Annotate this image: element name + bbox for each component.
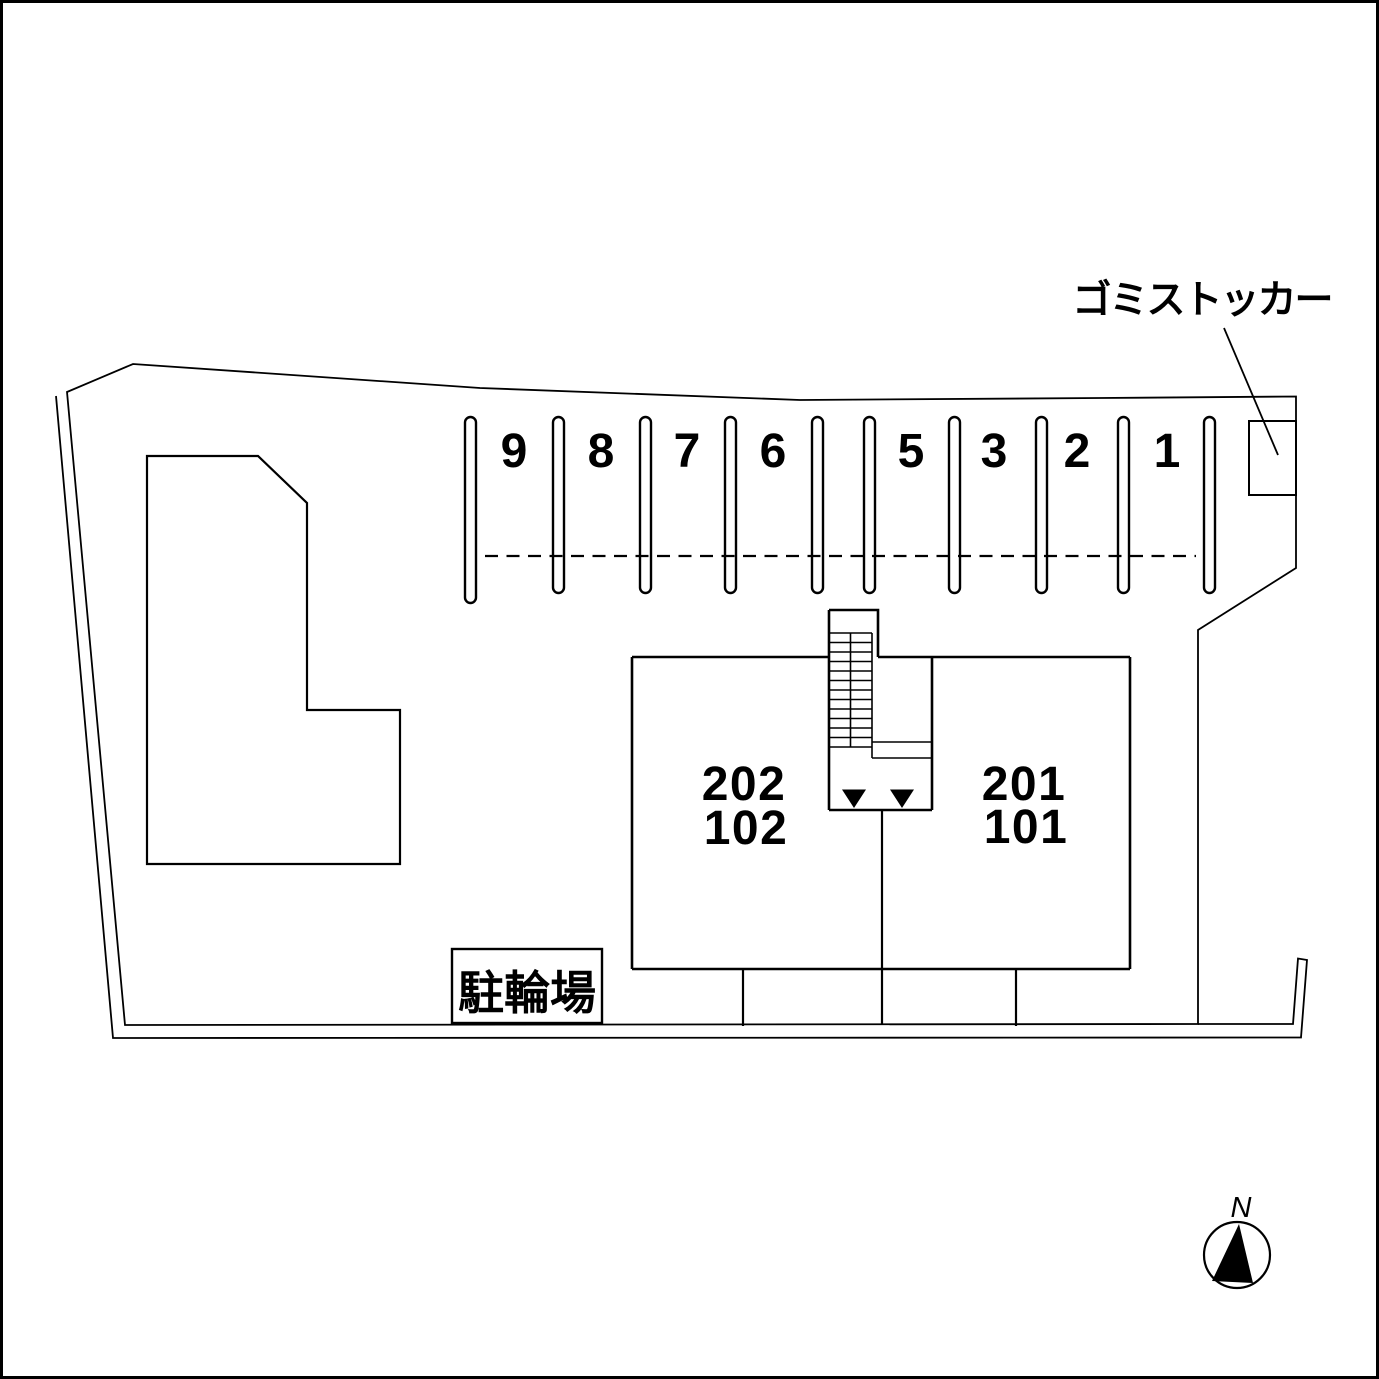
parking-space-number: 8 (588, 425, 615, 478)
parking-divider (1204, 417, 1215, 593)
parking-space-number: 6 (760, 425, 787, 478)
parking-space-number: 1 (1154, 425, 1181, 478)
north-label: N (1231, 1192, 1252, 1224)
parking-divider (1118, 417, 1129, 593)
parking-space-number: 7 (674, 425, 701, 478)
bicycle-parking-label: 駐輪場 (458, 967, 596, 1019)
parking-divider (553, 417, 564, 593)
parking-divider (864, 417, 875, 593)
garbage-stocker-box (1249, 421, 1296, 495)
compass: N (1204, 1192, 1270, 1288)
north-arrow (1212, 1224, 1253, 1283)
parking-divider (640, 417, 651, 593)
site-plan-drawing: 9 8 7 6 5 3 2 1 (0, 0, 1379, 1379)
site-plan-page: 9 8 7 6 5 3 2 1 (0, 0, 1379, 1379)
parking-divider (465, 417, 476, 603)
unit-number-102: 102 (704, 802, 789, 855)
garbage-stocker-label: ゴミストッカー (1072, 278, 1331, 322)
parking-divider (949, 417, 960, 593)
unit-number-101: 101 (984, 801, 1069, 854)
parking-divider (725, 417, 736, 593)
parking-space-number: 5 (898, 425, 925, 478)
parking-space-number: 3 (981, 425, 1008, 478)
parking-space-number: 2 (1064, 425, 1091, 478)
parking-divider (812, 417, 823, 593)
parking-space-number: 9 (501, 425, 528, 478)
parking-divider (1036, 417, 1047, 593)
